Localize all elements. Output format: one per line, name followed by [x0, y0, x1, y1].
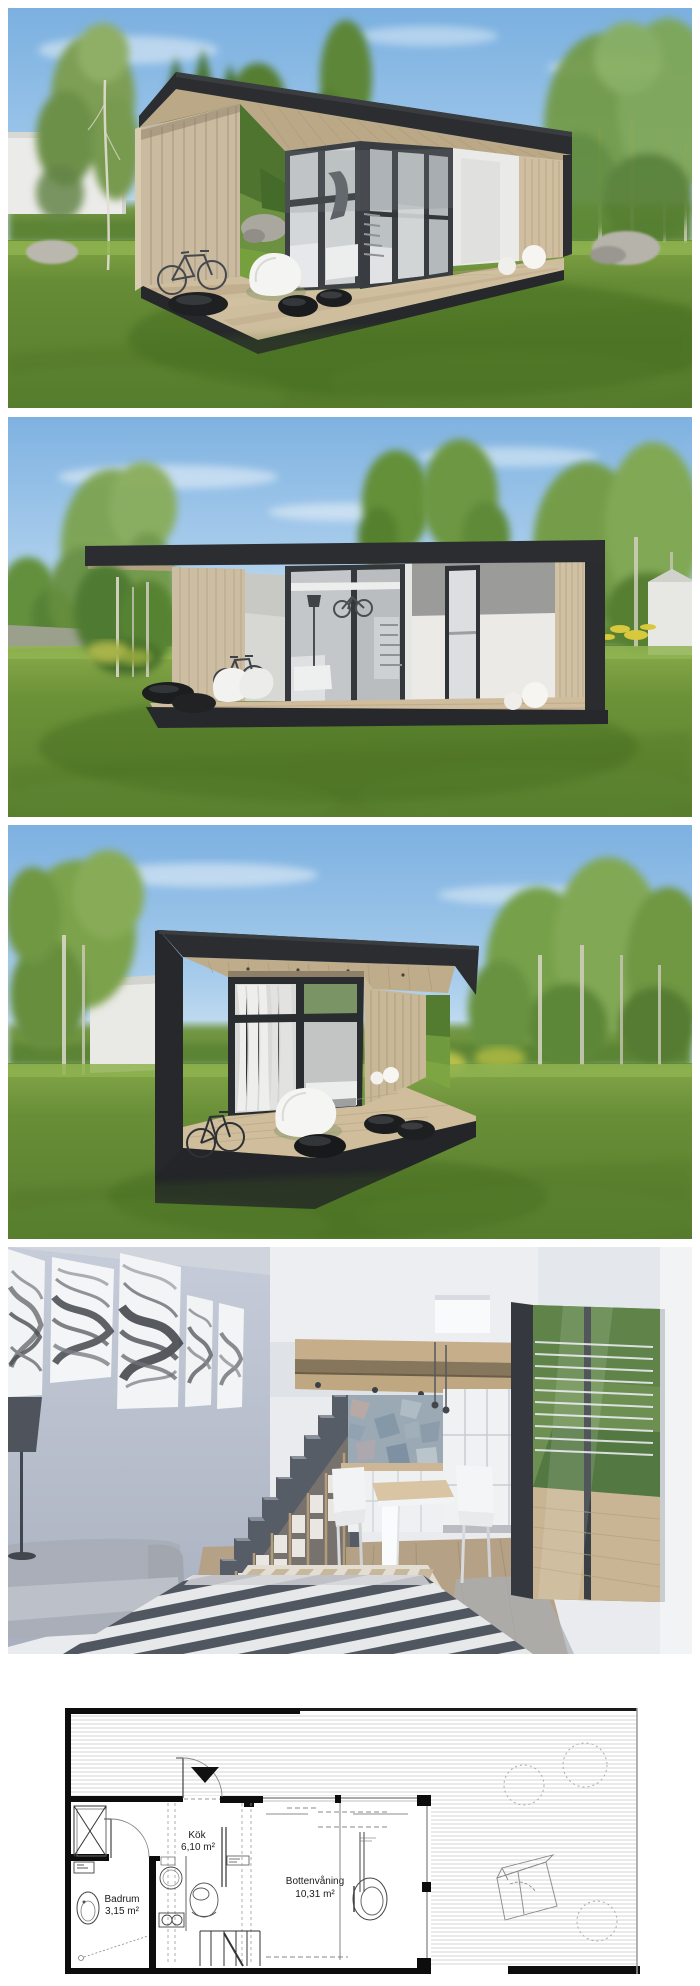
svg-text:6,10 m²: 6,10 m² — [181, 1842, 216, 1853]
svg-text:3,15 m²: 3,15 m² — [105, 1906, 140, 1917]
svg-text:Kök: Kök — [188, 1830, 206, 1841]
svg-text:Bottenvåning: Bottenvåning — [286, 1875, 344, 1887]
svg-text:Badrum: Badrum — [104, 1894, 139, 1905]
svg-text:10,31 m²: 10,31 m² — [295, 1889, 335, 1900]
